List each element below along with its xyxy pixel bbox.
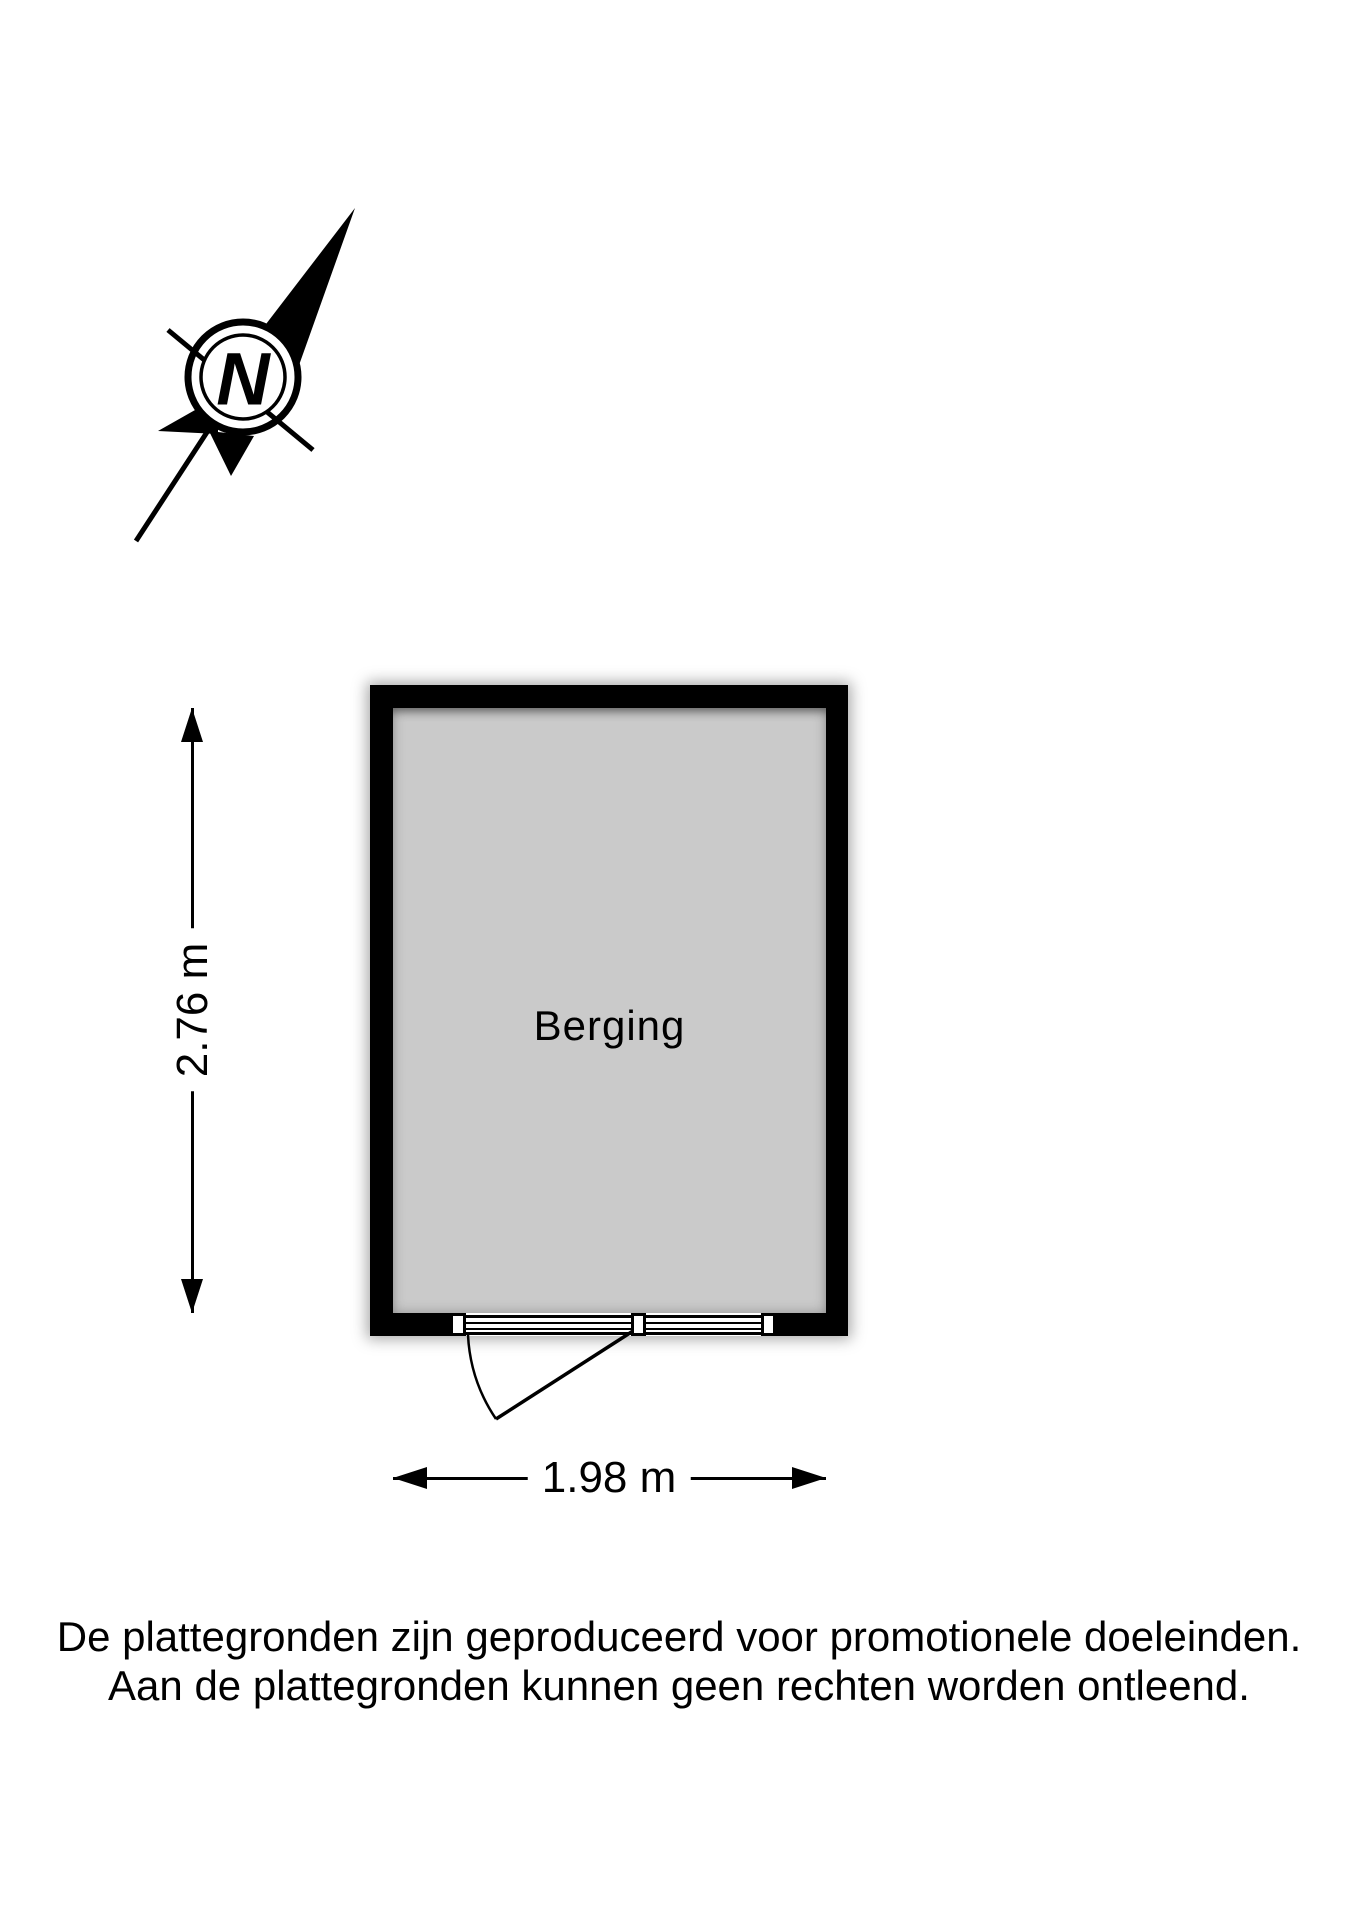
door-post	[761, 1313, 776, 1336]
room-label: Berging	[534, 1002, 686, 1050]
floorplan-page: N Berging 2.76 m 1.98 m De plattegronden…	[0, 0, 1358, 1920]
door-swing-arc	[468, 1335, 496, 1419]
door-leaf	[496, 1331, 633, 1419]
arrow-left-icon	[393, 1467, 427, 1489]
disclaimer-line-2: Aan de plattegronden kunnen geen rechten…	[0, 1661, 1358, 1710]
room-label-wrap: Berging	[393, 708, 826, 1313]
disclaimer-line-1: De plattegronden zijn geproduceerd voor …	[0, 1612, 1358, 1661]
arrow-up-icon	[181, 708, 203, 742]
compass-wing-south	[209, 431, 254, 476]
window-panel	[646, 1315, 761, 1335]
compass-north-icon: N	[95, 160, 405, 570]
arrow-down-icon	[181, 1279, 203, 1313]
disclaimer: De plattegronden zijn geproduceerd voor …	[0, 1612, 1358, 1710]
compass-letter: N	[216, 338, 271, 421]
arrow-right-icon	[792, 1467, 826, 1489]
door-swing-icon	[440, 1300, 660, 1440]
height-dimension-label: 2.76 m	[167, 929, 219, 1092]
width-dimension-label: 1.98 m	[528, 1452, 691, 1504]
